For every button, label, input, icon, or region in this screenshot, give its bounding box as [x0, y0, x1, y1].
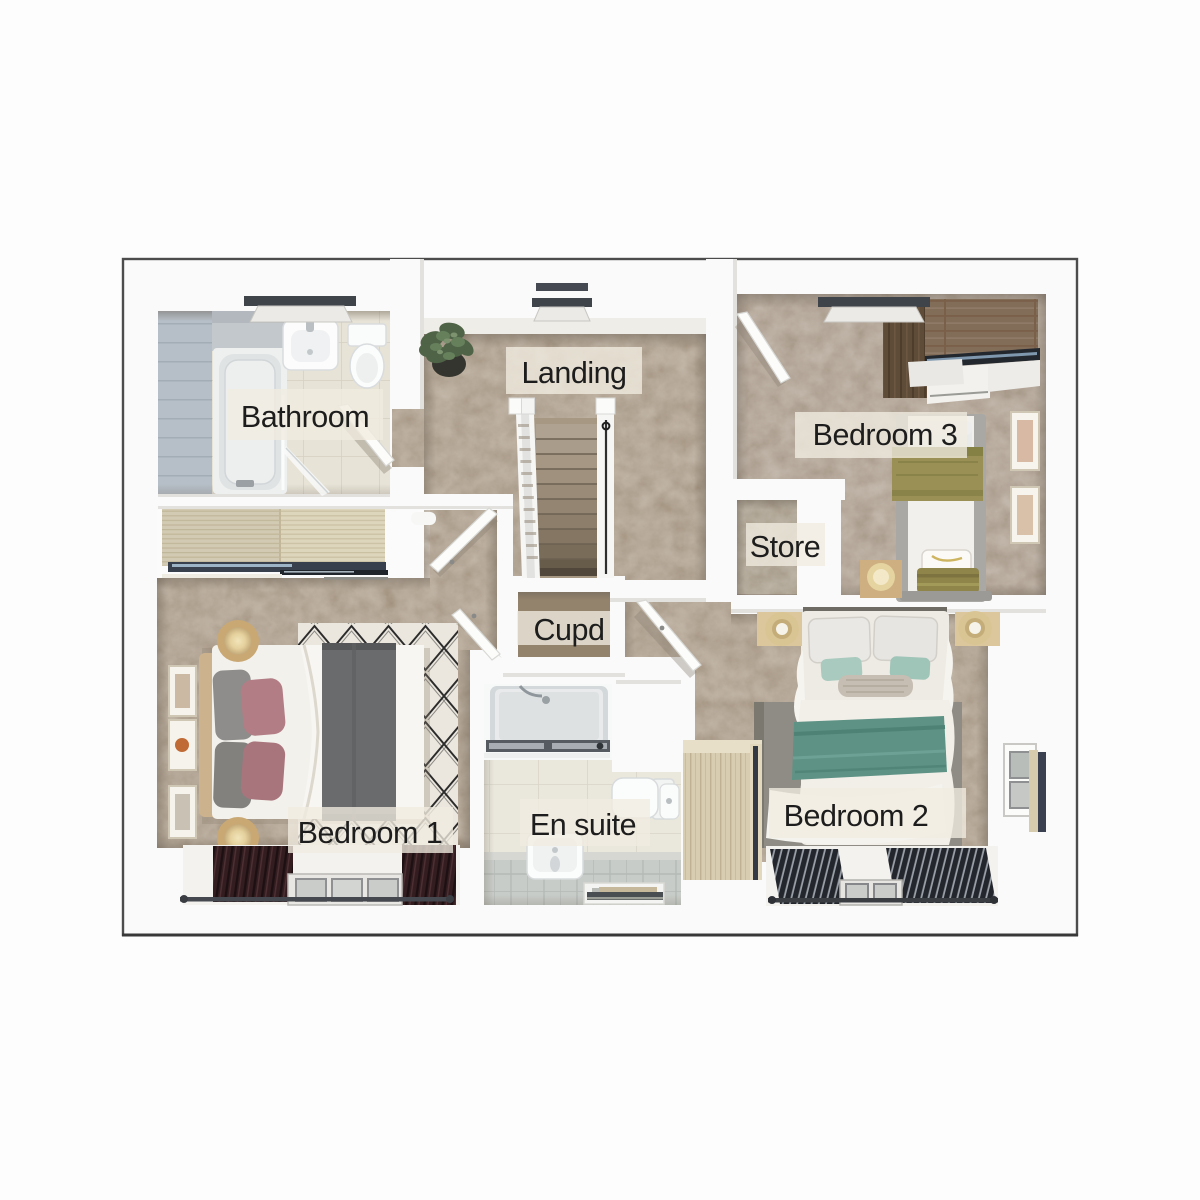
svg-text:Bedroom 3: Bedroom 3	[813, 418, 958, 452]
svg-text:Bedroom 1: Bedroom 1	[298, 816, 443, 850]
svg-text:Bedroom 2: Bedroom 2	[784, 799, 929, 833]
svg-text:En suite: En suite	[530, 808, 636, 842]
svg-text:Cupd: Cupd	[534, 613, 605, 647]
svg-text:Landing: Landing	[521, 356, 626, 390]
svg-text:Bathroom: Bathroom	[241, 400, 369, 434]
svg-text:Store: Store	[750, 530, 820, 564]
